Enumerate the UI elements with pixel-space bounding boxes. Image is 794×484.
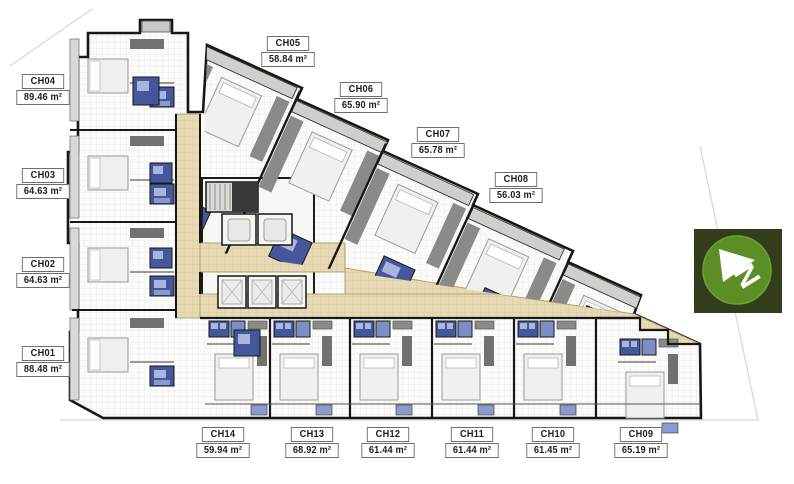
unit-area: 56.03 m² [489,188,542,203]
north-arrow-icon: N [694,229,782,313]
unit-id: CH10 [532,427,574,442]
unit-area: 59.94 m² [196,443,249,458]
north-indicator-icon: N [694,229,782,313]
unit-area: 89.46 m² [16,90,69,105]
unit-id: CH13 [291,427,333,442]
unit-id: CH08 [495,172,537,187]
unit-id: CH03 [22,168,64,183]
unit-label-ch07: CH07 65.78 m² [411,127,464,158]
unit-id: CH01 [22,346,64,361]
unit-area: 88.48 m² [16,362,69,377]
unit-label-ch05: CH05 58.84 m² [261,36,314,67]
unit-area: 65.19 m² [614,443,667,458]
unit-area: 64.63 m² [16,273,69,288]
roof-block [142,21,170,32]
unit-label-ch13: CH13 68.92 m² [285,427,338,458]
unit-label-ch08: CH08 56.03 m² [489,172,542,203]
unit-area: 65.90 m² [334,98,387,113]
unit-id: CH05 [267,36,309,51]
floor-plan-page: CH04 89.46 m² CH03 64.63 m² CH02 64.63 m… [0,0,794,484]
unit-label-ch01: CH01 88.48 m² [16,346,69,377]
unit-id: CH09 [620,427,662,442]
unit-area: 64.63 m² [16,184,69,199]
unit-id: CH02 [22,257,64,272]
unit-label-ch12: CH12 61.44 m² [361,427,414,458]
unit-label-ch09: CH09 65.19 m² [614,427,667,458]
unit-area: 61.45 m² [526,443,579,458]
unit-id: CH06 [340,82,382,97]
unit-area: 61.44 m² [445,443,498,458]
unit-label-ch06: CH06 65.90 m² [334,82,387,113]
unit-id: CH07 [417,127,459,142]
unit-label-ch04: CH04 89.46 m² [16,74,69,105]
unit-label-ch11: CH11 61.44 m² [445,427,498,458]
unit-label-ch03: CH03 64.63 m² [16,168,69,199]
unit-area: 61.44 m² [361,443,414,458]
unit-area: 68.92 m² [285,443,338,458]
unit-id: CH11 [451,427,493,442]
unit-area: 65.78 m² [411,143,464,158]
unit-id: CH14 [202,427,244,442]
unit-area: 58.84 m² [261,52,314,67]
unit-id: CH04 [22,74,64,89]
unit-id: CH12 [367,427,409,442]
unit-label-ch14: CH14 59.94 m² [196,427,249,458]
unit-label-ch02: CH02 64.63 m² [16,257,69,288]
stair-core [206,182,258,212]
floor-plan-image [0,0,794,484]
unit-label-ch10: CH10 61.45 m² [526,427,579,458]
